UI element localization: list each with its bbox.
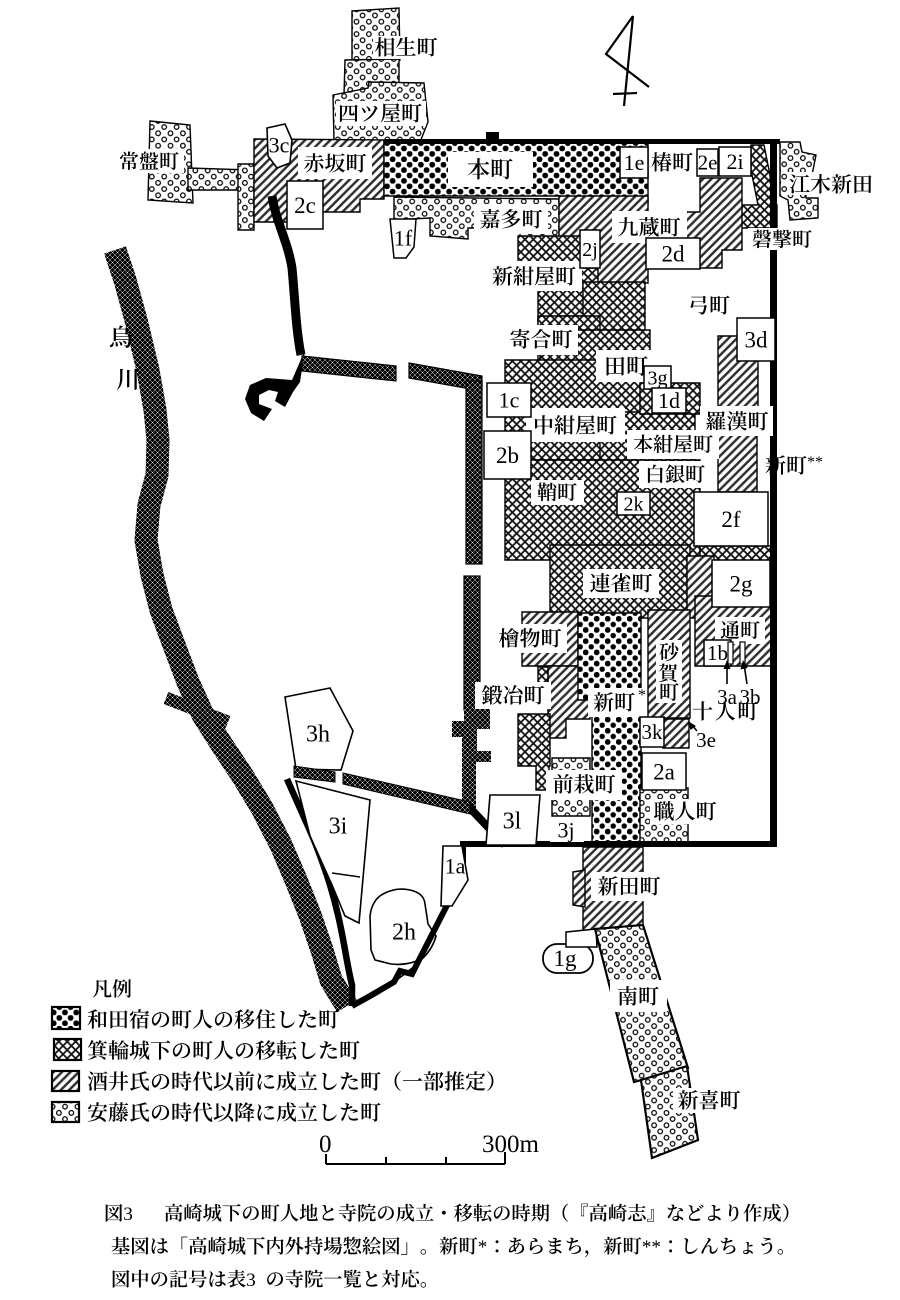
svg-text:2c: 2c — [294, 193, 316, 218]
svg-text:2d: 2d — [662, 241, 686, 266]
svg-text:3a: 3a — [717, 685, 738, 709]
svg-text:1d: 1d — [658, 388, 680, 413]
svg-text:3: 3 — [123, 1204, 133, 1225]
svg-text:*: * — [478, 1237, 488, 1258]
svg-text:3b: 3b — [740, 685, 761, 709]
svg-text:2i: 2i — [726, 149, 743, 174]
svg-text:1f: 1f — [394, 226, 413, 251]
svg-text:**: ** — [642, 1237, 661, 1258]
svg-text:3k: 3k — [642, 720, 664, 744]
svg-text:3e: 3e — [696, 728, 716, 752]
svg-text:2h: 2h — [392, 919, 416, 945]
svg-text:0: 0 — [319, 1131, 332, 1158]
svg-text:2j: 2j — [582, 239, 598, 261]
svg-text:3j: 3j — [557, 818, 574, 843]
svg-text:*: * — [638, 687, 646, 704]
svg-text:1a: 1a — [445, 854, 466, 879]
svg-text:3c: 3c — [269, 133, 290, 158]
svg-text:**: ** — [807, 454, 823, 471]
svg-text:2e: 2e — [698, 151, 718, 175]
svg-text:3l: 3l — [503, 808, 522, 834]
svg-text:3g: 3g — [648, 367, 668, 389]
svg-text:1b: 1b — [707, 641, 728, 665]
svg-text:300m: 300m — [482, 1131, 540, 1158]
svg-text:3: 3 — [246, 1270, 256, 1291]
svg-text:1e: 1e — [624, 150, 645, 175]
svg-text:2g: 2g — [730, 571, 754, 596]
svg-text:2k: 2k — [624, 493, 644, 515]
svg-text:2a: 2a — [653, 759, 675, 784]
svg-text:2b: 2b — [496, 443, 519, 468]
svg-text:1c: 1c — [499, 388, 520, 413]
svg-text:2f: 2f — [721, 507, 741, 532]
svg-text:1g: 1g — [554, 946, 578, 971]
svg-text:3i: 3i — [329, 813, 348, 839]
svg-text:3d: 3d — [745, 327, 769, 352]
svg-text:3h: 3h — [306, 721, 330, 747]
